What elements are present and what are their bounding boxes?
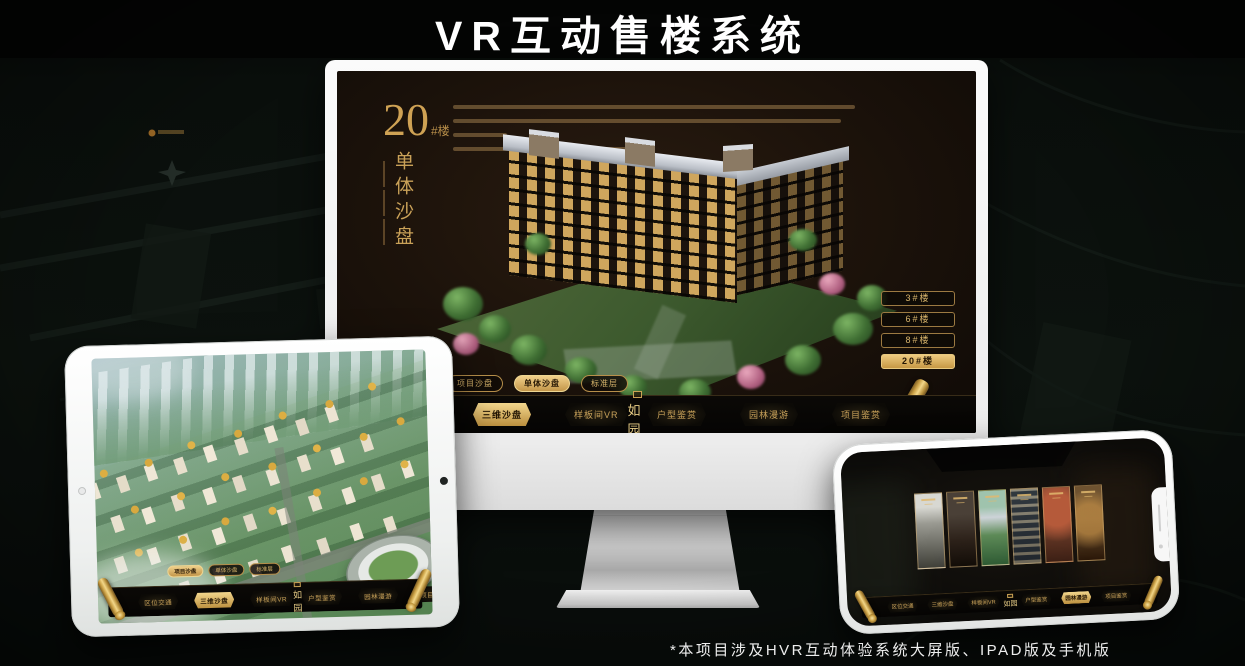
subtab[interactable]: 单体沙盘 — [208, 564, 244, 577]
phone-camera-icon — [1159, 544, 1163, 548]
nav-item[interactable]: 三维沙盘 — [927, 597, 958, 610]
subtab[interactable]: 项目沙盘 — [447, 375, 503, 392]
building-number-suffix: #楼 — [431, 124, 450, 138]
nav-item[interactable]: 园林漫游 — [740, 403, 798, 426]
scene-card[interactable] — [1042, 486, 1074, 563]
nav-item[interactable]: 户型鉴赏 — [302, 588, 342, 605]
tablet-camera-icon — [78, 487, 86, 495]
page-title: VR互动售楼系统 — [0, 2, 1245, 62]
nav-item[interactable]: 园林漫游 — [358, 587, 398, 604]
footnote-text: *本项目涉及HVR互动体验系统大屏版、IPAD版及手机版 — [670, 639, 1111, 660]
promo-stage: VR互动售楼系统 20#楼 单体沙盘 — [0, 0, 1245, 666]
nav-item[interactable]: 区位交通 — [887, 599, 918, 612]
nav-item[interactable]: 户型鉴赏 — [1021, 593, 1052, 606]
interior-backdrop — [926, 441, 1077, 472]
nav-item[interactable]: 项目鉴赏 — [1101, 589, 1132, 602]
scene-card[interactable] — [1010, 487, 1042, 564]
floor-button-group: 3#楼6#楼8#楼20#楼 — [881, 291, 955, 369]
scene-card[interactable] — [978, 489, 1010, 566]
floor-button[interactable]: 3#楼 — [881, 291, 955, 306]
nav-item[interactable]: 样板间VR — [250, 590, 293, 607]
subtab[interactable]: 项目沙盘 — [167, 565, 203, 578]
subtab[interactable]: 标准层 — [581, 375, 628, 392]
floor-button[interactable]: 20#楼 — [881, 354, 955, 369]
tablet-screen: 项目沙盘单体沙盘标准层 区位交通三维沙盘样板间VR 如园 户型鉴赏园林漫游项目鉴… — [91, 349, 432, 623]
scene-card[interactable] — [914, 492, 946, 569]
tablet-home-button[interactable] — [440, 477, 448, 485]
building-number: 20 — [383, 97, 429, 143]
scene-card-gallery — [914, 484, 1105, 569]
building-subtitle-vertical: 单体沙盘 — [389, 151, 416, 251]
phone-device: 区位交通三维沙盘样板间VR 如园 户型鉴赏园林漫游项目鉴赏 — [832, 429, 1181, 635]
phone-speaker-icon — [1158, 504, 1161, 531]
subtab[interactable]: 单体沙盘 — [514, 375, 570, 392]
monitor-stand-base — [556, 590, 760, 608]
subtab[interactable]: 标准层 — [249, 563, 280, 576]
brand-emblem-icon — [633, 391, 642, 398]
brand-logo[interactable]: 如园 — [1003, 593, 1018, 609]
tablet-nav-left: 区位交通三维沙盘样板间VR — [138, 590, 293, 610]
nav-item[interactable]: 户型鉴赏 — [648, 403, 706, 426]
phone-nav-left: 区位交通三维沙盘样板间VR — [887, 595, 1000, 612]
floor-button[interactable]: 8#楼 — [881, 333, 955, 348]
scene-card[interactable] — [946, 491, 978, 568]
phone-notch — [1151, 487, 1170, 562]
brand-logo[interactable]: 如园 — [628, 391, 648, 433]
phone-nav-right: 户型鉴赏园林漫游项目鉴赏 — [1021, 589, 1132, 606]
scene-card[interactable] — [1074, 484, 1106, 561]
nav-item[interactable]: 三维沙盘 — [473, 403, 531, 426]
nav-item[interactable]: 三维沙盘 — [194, 591, 234, 608]
phone-screen: 区位交通三维沙盘样板间VR 如园 户型鉴赏园林漫游项目鉴赏 — [840, 437, 1172, 627]
tablet-device: 项目沙盘单体沙盘标准层 区位交通三维沙盘样板间VR 如园 户型鉴赏园林漫游项目鉴… — [64, 336, 460, 638]
building-subtitle-en-decoration — [383, 161, 385, 245]
nav-item[interactable]: 样板间VR — [967, 595, 1000, 609]
nav-item[interactable]: 园林漫游 — [1061, 591, 1092, 604]
brand-emblem-icon — [1007, 593, 1013, 597]
floor-button[interactable]: 6#楼 — [881, 312, 955, 327]
brand-logo[interactable]: 如园 — [293, 581, 303, 613]
monitor-stand — [580, 508, 740, 594]
monitor-nav-right: 户型鉴赏园林漫游项目鉴赏 — [648, 403, 890, 426]
nav-item[interactable]: 项目鉴赏 — [832, 403, 890, 426]
nav-item[interactable]: 区位交通 — [138, 593, 178, 610]
nav-item[interactable]: 样板间VR — [565, 403, 628, 426]
monitor-subtabs: 项目沙盘单体沙盘标准层 — [447, 375, 628, 392]
brand-emblem-icon — [294, 581, 301, 586]
